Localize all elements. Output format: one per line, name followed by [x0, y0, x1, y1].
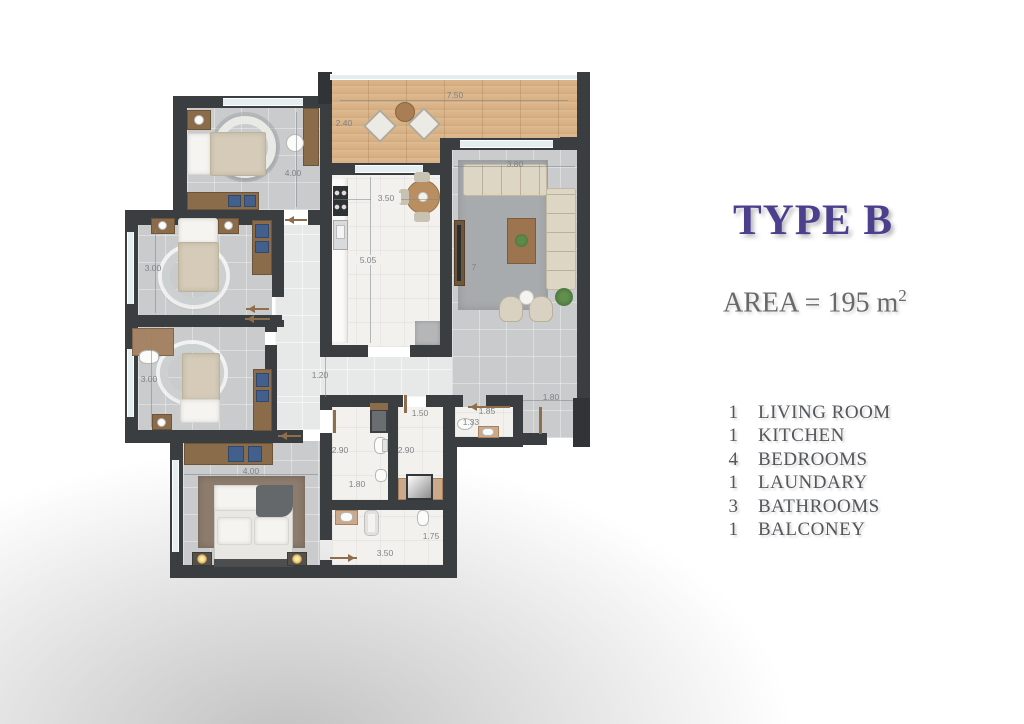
kitchen-sink-basin	[336, 225, 345, 239]
wall	[410, 345, 452, 357]
dim-bedroom3: 3.00	[135, 374, 163, 384]
room-count: 1	[722, 518, 738, 541]
bed-mattress	[210, 132, 266, 176]
table-plant	[515, 234, 528, 247]
dim-living-width: 3.80	[500, 159, 530, 169]
dim-kitchen-width: 3.50	[371, 193, 401, 203]
bathtub	[364, 510, 379, 536]
lamp	[224, 221, 233, 230]
desk-chair	[286, 134, 304, 152]
bedroom3-window	[127, 349, 134, 417]
room-label: LAUNDARY	[758, 471, 868, 494]
master-window	[172, 460, 179, 552]
wardrobe-clothes	[244, 195, 256, 207]
lamp	[158, 221, 167, 230]
room-count: 1	[722, 471, 738, 494]
dim-bath-d-width: 3.50	[371, 548, 399, 558]
room-label: BATHROOMS	[758, 495, 880, 518]
dim-line	[296, 112, 297, 207]
bathroom-sink	[375, 469, 387, 482]
wardrobe-clothes	[255, 241, 269, 253]
bathroom-sink	[340, 512, 353, 522]
bedroom1-window	[223, 98, 303, 106]
legend-row: 3 BATHROOMS	[722, 495, 891, 518]
door-swing-arrow	[245, 318, 270, 320]
dim-laundry-width: 1.50	[406, 408, 434, 418]
wall	[320, 345, 368, 357]
room-label: KITCHEN	[758, 424, 845, 447]
shower-shelf	[370, 403, 388, 410]
dim-bath-a-length: 2.90	[326, 445, 354, 455]
wardrobe-clothes	[228, 446, 244, 462]
area-label: AREA = 195 m2	[723, 286, 907, 319]
dim-laundry-length: 2.90	[392, 445, 420, 455]
wall	[513, 397, 523, 447]
sofa-right	[546, 188, 576, 290]
vestibule-floor	[275, 397, 320, 430]
dim-bedroom2: 3.00	[139, 263, 167, 273]
wall	[320, 560, 332, 567]
legend-row: 4 BEDROOMS	[722, 448, 891, 471]
door-leaf	[333, 410, 336, 433]
plan-type-title: TYPE B	[733, 196, 893, 245]
toilet	[417, 510, 429, 526]
dim-corridor: 1.20	[306, 370, 334, 380]
wall	[445, 437, 523, 447]
dim-bedroom1: 4.00	[278, 168, 308, 178]
washing-machine	[406, 474, 433, 500]
room-legend: 1 LIVING ROOM 1 KITCHEN 4 BEDROOMS 1 LAU…	[722, 401, 891, 541]
dim-line	[340, 100, 568, 101]
bedroom2-window	[127, 232, 134, 304]
dining-chair	[414, 172, 430, 182]
wall	[320, 500, 457, 510]
wall	[272, 320, 284, 327]
bed-throw-blanket	[256, 485, 293, 517]
dim-bath-d-depth: 1.75	[417, 531, 445, 541]
bed-pillow	[254, 517, 289, 545]
bed-pillow	[180, 399, 220, 423]
toilet-tank	[382, 439, 388, 452]
dim-kitchen-length: 5.05	[352, 255, 384, 265]
wall	[577, 72, 590, 398]
dim-balcony-width: 7.50	[440, 90, 470, 100]
bed-pillow	[217, 517, 252, 545]
balcony-glass-rail	[330, 74, 577, 80]
wall	[125, 315, 282, 327]
side-table	[519, 290, 534, 305]
door-swing-arrow	[246, 308, 269, 310]
wall	[320, 395, 332, 410]
area-exponent: 2	[898, 286, 907, 305]
wardrobe-clothes	[228, 195, 241, 207]
bed-pillow	[187, 133, 211, 175]
room-label: LIVING ROOM	[758, 401, 891, 424]
dim-bath-c-width: 1.85	[473, 406, 501, 416]
lamp	[157, 418, 166, 427]
balcony-sliding-door	[355, 165, 423, 173]
dim-balcony-depth: 2.40	[330, 118, 358, 128]
wall	[320, 96, 332, 347]
bathroom-sink	[482, 428, 494, 436]
legend-row: 1 KITCHEN	[722, 424, 891, 447]
door-swing-arrow	[278, 435, 301, 437]
entry-door-leaf	[539, 407, 542, 434]
living-balcony-window	[460, 140, 553, 148]
lamp-glow	[292, 554, 302, 564]
dim-entry-hall: 1.80	[537, 392, 565, 402]
dim-living-partial: 7	[468, 262, 480, 272]
stove	[333, 186, 348, 216]
wall	[173, 96, 187, 225]
wardrobe-clothes	[255, 224, 269, 238]
corridor-floor	[320, 357, 452, 397]
desk-chair	[139, 350, 159, 364]
legend-row: 1 LAUNDARY	[722, 471, 891, 494]
wall-corner	[573, 398, 590, 447]
desk	[303, 108, 319, 166]
wall	[320, 395, 403, 407]
wardrobe-clothes	[248, 446, 262, 462]
bed-mattress	[182, 353, 220, 401]
wall	[265, 327, 277, 332]
legend-row: 1 BALCONEY	[722, 518, 891, 541]
room-count: 4	[722, 448, 738, 471]
floor-plan: 7.50 2.40 4.00 3.00 3.00 4.00 3.50 5.05 …	[118, 62, 600, 584]
wardrobe-clothes	[256, 373, 269, 387]
dining-chair	[414, 212, 430, 222]
kitchen-mat	[415, 321, 440, 345]
shower	[370, 409, 388, 433]
balcony-table	[395, 102, 415, 122]
room-label: BEDROOMS	[758, 448, 868, 471]
wall	[443, 443, 457, 578]
room-count: 3	[722, 495, 738, 518]
wall	[440, 138, 452, 347]
plant	[555, 288, 573, 306]
wall	[523, 433, 547, 445]
lamp-glow	[197, 554, 207, 564]
legend-row: 1 LIVING ROOM	[722, 401, 891, 424]
bed-mattress	[178, 242, 219, 292]
door-swing-arrow	[285, 219, 307, 221]
lamp	[194, 115, 204, 125]
tv-screen	[457, 225, 461, 281]
room-label: BALCONEY	[758, 518, 865, 541]
dim-master-bedroom: 4.00	[236, 466, 266, 476]
area-text: AREA = 195 m	[723, 287, 898, 318]
headboard	[214, 559, 293, 567]
bed-pillow	[178, 218, 218, 244]
wardrobe-clothes	[256, 390, 269, 402]
dining-plate	[418, 192, 428, 202]
room-count: 1	[722, 401, 738, 424]
room-count: 1	[722, 424, 738, 447]
door-swing-arrow	[330, 557, 357, 559]
dim-bath-a-width: 1.80	[343, 479, 371, 489]
dim-bath-c-depth: 1.33	[457, 417, 485, 427]
